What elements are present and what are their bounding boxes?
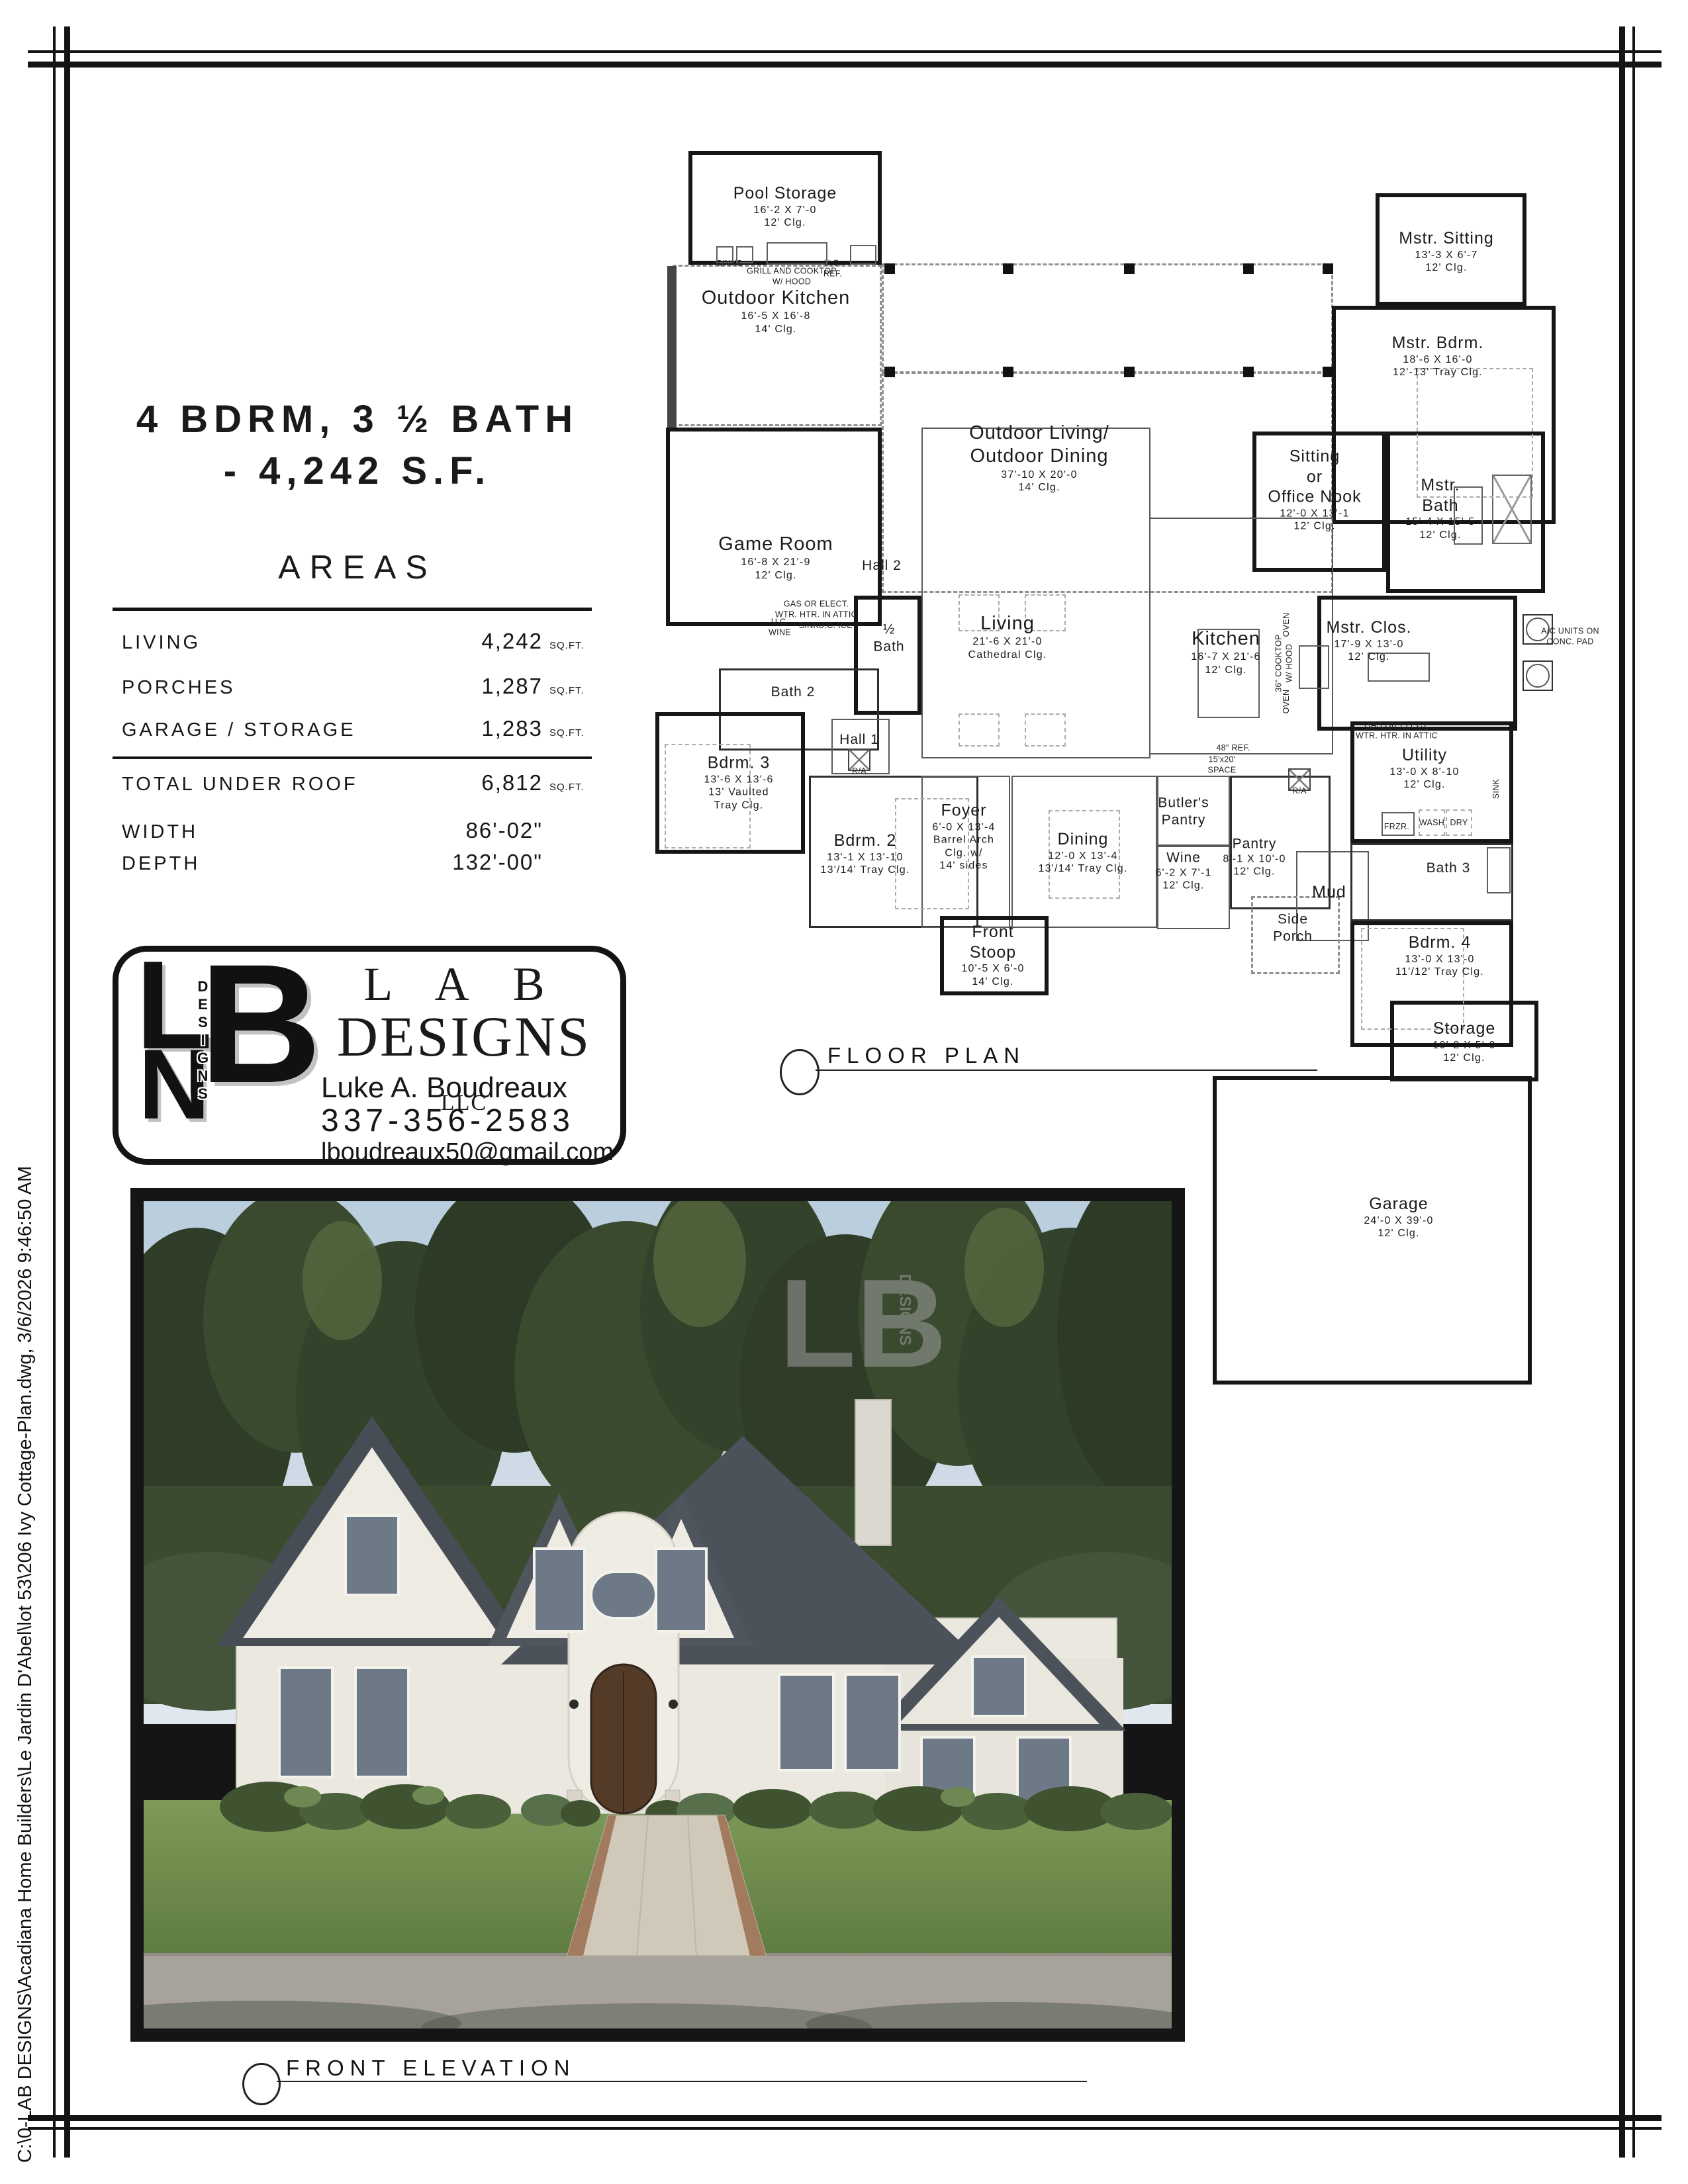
annotation-return-air-2: R/A bbox=[1292, 786, 1307, 797]
grill-icon bbox=[767, 242, 827, 265]
logo-email: lboudreaux50@gmail.com bbox=[321, 1140, 606, 1165]
lantern bbox=[569, 1700, 579, 1709]
room-label-pantry: Pantry 8'-1 X 10'-0 12' Clg. bbox=[1223, 836, 1286, 879]
areas-label: WIDTH bbox=[122, 821, 437, 843]
bath3-tub-outline bbox=[1487, 847, 1511, 893]
border-top-thick bbox=[28, 62, 1662, 68]
areas-value: 1,287 bbox=[437, 674, 543, 699]
room-label-sitting-office: Sitting or Office Nook 12'-0 X 13'-1 12'… bbox=[1268, 447, 1361, 533]
porch-column bbox=[1124, 367, 1135, 377]
room-label-mstr-sitting: Mstr. Sitting 13'-3 X 6'-7 12' Clg. bbox=[1399, 228, 1494, 275]
annotation-oven-lower: OVEN bbox=[1282, 690, 1292, 714]
porch-column bbox=[1003, 263, 1013, 274]
room-label-hall2: Hall 2 bbox=[862, 557, 902, 574]
porch-column bbox=[884, 263, 895, 274]
photo-watermark: LB DESIGNS bbox=[779, 1253, 947, 1394]
ac-unit-symbol bbox=[1523, 660, 1553, 691]
room-outline-game-room bbox=[666, 428, 882, 626]
monogram-vertical-designs: DESIGNS bbox=[194, 978, 211, 1103]
border-left-thick bbox=[64, 26, 70, 2158]
room-label-living: Living 21'-6 X 21'-0 Cathedral Clg. bbox=[968, 612, 1047, 661]
annotation-uc-ref: U.C. REF. bbox=[823, 258, 842, 279]
logo-name-lab: L A B bbox=[317, 957, 608, 1012]
annotation-space-15x20: 15'x20' SPACE bbox=[1208, 754, 1237, 775]
room-label-half-bath: ½ Bath bbox=[873, 621, 904, 655]
annotation-uc-wine: U.C. WINE bbox=[769, 617, 791, 637]
logo-phone: 337-356-2583 bbox=[321, 1105, 606, 1137]
border-bottom-thin bbox=[28, 2127, 1662, 2130]
annotation-return-air-1: R/A bbox=[852, 766, 867, 777]
areas-label: LIVING bbox=[122, 632, 437, 654]
annotation-utility-sink: SINK bbox=[1491, 779, 1502, 799]
uc-ref-icon bbox=[850, 245, 876, 265]
margin-file-path: C:\0-LAB DESIGNS\Acadiana Home Builders\… bbox=[15, 997, 36, 2163]
floor-plan-callout-label: FLOOR PLAN bbox=[827, 1043, 1025, 1068]
room-label-mstr-bdrm: Mstr. Bdrm. 18'-6 X 16'-0 12'-13' Tray C… bbox=[1392, 333, 1484, 379]
lantern bbox=[669, 1700, 678, 1709]
room-label-side-porch: Side Porch bbox=[1273, 911, 1313, 944]
areas-row-garage-storage: GARAGE / STORAGE 1,283 SQ.FT. bbox=[122, 716, 600, 741]
porch-column bbox=[1243, 263, 1254, 274]
annotation-oven-upper: OVEN bbox=[1282, 613, 1292, 637]
porch-column bbox=[1003, 367, 1013, 377]
plan-title-line2: - 4,242 S.F. bbox=[113, 449, 602, 493]
annotation-cooktop: 36" COOKTOP W/ HOOD bbox=[1274, 634, 1294, 692]
porch-wall-accent bbox=[667, 266, 677, 428]
annotation-ref-48: 48" REF. bbox=[1216, 743, 1250, 754]
porch-column bbox=[1323, 367, 1333, 377]
areas-label: GARAGE / STORAGE bbox=[122, 719, 437, 741]
areas-unit: SQ.FT. bbox=[543, 640, 600, 651]
room-label-game-room: Game Room 16'-8 X 21'-9 12' Clg. bbox=[718, 533, 833, 582]
annotation-bar-sink: SINK bbox=[799, 621, 819, 631]
room-label-bdrm4: Bdrm. 4 13'-0 X 13'-0 11'/12' Tray Clg. bbox=[1395, 933, 1484, 979]
chimney bbox=[855, 1400, 891, 1545]
annotation-water-heater-2: GAS OR ELECT. WTR. HTR. IN ATTIC bbox=[1356, 720, 1438, 741]
porch-column bbox=[1323, 263, 1333, 274]
plan-title-line1: 4 BDRM, 3 ½ BATH bbox=[113, 397, 602, 441]
room-label-utility: Utility 13'-0 X 8'-10 12' Clg. bbox=[1389, 745, 1459, 792]
room-label-front-stoop: Front Stoop 10'-5 X 6'-0 14' Clg. bbox=[961, 922, 1024, 988]
front-elevation-callout-bubble bbox=[242, 2063, 281, 2105]
room-label-storage: Storage 10'-2 X 5'-0 12' Clg. bbox=[1432, 1019, 1495, 1065]
areas-rule-top bbox=[113, 608, 592, 611]
areas-row-living: LIVING 4,242 SQ.FT. bbox=[122, 629, 600, 654]
areas-unit: SQ.FT. bbox=[543, 782, 600, 793]
room-label-bdrm2: Bdrm. 2 13'-1 X 13'-10 13'/14' Tray Clg. bbox=[820, 831, 910, 877]
areas-unit: SQ.FT. bbox=[543, 727, 600, 739]
room-label-outdoor-living: Outdoor Living/ Outdoor Dining 37'-10 X … bbox=[969, 422, 1109, 494]
room-label-wine: Wine 6'-2 X 7'-1 12' Clg. bbox=[1155, 850, 1211, 893]
front-elevation-callout-line bbox=[277, 2081, 1087, 2082]
areas-row-total: TOTAL UNDER ROOF 6,812 SQ.FT. bbox=[122, 770, 600, 796]
room-label-outdoor-kitchen: Outdoor Kitchen 16'-5 X 16'-8 14' Clg. bbox=[702, 287, 851, 336]
areas-value: 4,242 bbox=[437, 629, 543, 654]
front-elevation-photo: LB DESIGNS bbox=[130, 1188, 1185, 2042]
room-label-foyer: Foyer 6'-0 X 13'-4 Barrel Arch Clg. w/ 1… bbox=[932, 801, 995, 873]
room-label-mud: Mud bbox=[1312, 882, 1346, 903]
areas-row-porches: PORCHES 1,287 SQ.FT. bbox=[122, 674, 600, 699]
porch-outline-upper-colonnade bbox=[882, 263, 1333, 373]
monogram-letter-b: B bbox=[199, 927, 322, 1121]
border-top-thin bbox=[28, 50, 1662, 53]
border-left-thin bbox=[53, 26, 56, 2158]
annotation-wash: WASH bbox=[1419, 818, 1444, 829]
room-label-bath3: Bath 3 bbox=[1427, 860, 1471, 877]
floor-plan-callout-line bbox=[816, 1069, 1317, 1071]
annotation-sinks: SINKS bbox=[716, 259, 742, 269]
floor-plan-callout-bubble bbox=[780, 1049, 820, 1095]
border-right-thick bbox=[1619, 26, 1625, 2158]
areas-label: PORCHES bbox=[122, 677, 437, 699]
annotation-ac-units: A/C UNITS ON CONC. PAD bbox=[1541, 626, 1599, 647]
room-label-garage: Garage 24'-0 X 39'-0 12' Clg. bbox=[1364, 1194, 1433, 1240]
areas-value: 132'-00" bbox=[437, 850, 543, 875]
porch-column bbox=[1243, 367, 1254, 377]
lb-monogram: L N B DESIGNS bbox=[136, 956, 301, 1154]
logo-contact-name: Luke A. Boudreaux bbox=[321, 1073, 606, 1103]
areas-value: 6,812 bbox=[437, 770, 543, 796]
room-label-pool-storage: Pool Storage 16'-2 X 7'-0 12' Clg. bbox=[733, 183, 837, 230]
border-bottom-thick bbox=[28, 2115, 1662, 2121]
areas-value: 1,283 bbox=[437, 716, 543, 741]
elevation-scene: LB DESIGNS bbox=[144, 1201, 1172, 2028]
range-icon bbox=[1299, 645, 1329, 689]
annotation-dry: DRY bbox=[1450, 818, 1468, 829]
border-right-thin bbox=[1632, 26, 1635, 2158]
road-shadows bbox=[144, 2001, 1172, 2028]
porch-column bbox=[884, 367, 895, 377]
svg-text:LB: LB bbox=[779, 1253, 947, 1394]
room-label-bath2: Bath 2 bbox=[771, 684, 816, 701]
annotation-frzr: FRZR. bbox=[1384, 822, 1409, 833]
svg-text:DESIGNS: DESIGNS bbox=[896, 1274, 914, 1345]
logo-designs-text: DESIGNS bbox=[337, 1005, 591, 1068]
front-elevation-callout-label: FRONT ELEVATION bbox=[286, 2056, 576, 2081]
room-label-kitchen: Kitchen 16'-7 X 21'-6 12' Clg. bbox=[1191, 627, 1260, 676]
room-label-dining: Dining 12'-0 X 13'-4 13'/14' Tray Clg. bbox=[1038, 829, 1127, 876]
drawing-sheet: C:\0-LAB DESIGNS\Acadiana Home Builders\… bbox=[0, 0, 1688, 2184]
living-sofa-outline bbox=[959, 713, 1000, 747]
annotation-uc-ice: U.C. ICE bbox=[818, 621, 853, 631]
room-label-bdrm3: Bdrm. 3 13'-6 X 13'-6 13' Vaulted Tray C… bbox=[704, 752, 773, 811]
room-label-butlers-pantry: Butler's Pantry bbox=[1158, 794, 1209, 828]
room-label-hall1: Hall 1 bbox=[839, 731, 879, 749]
areas-label: DEPTH bbox=[122, 853, 437, 875]
areas-label: TOTAL UNDER ROOF bbox=[122, 774, 437, 796]
areas-heading: AREAS bbox=[113, 548, 602, 586]
areas-value: 86'-02" bbox=[437, 818, 543, 843]
living-sofa-outline bbox=[1025, 713, 1066, 747]
areas-row-width: WIDTH 86'-02" bbox=[122, 818, 600, 843]
porch-column bbox=[1124, 263, 1135, 274]
room-label-mstr-bath: Mstr. Bath 15'-4 X 15'-5 12' Clg. bbox=[1405, 475, 1475, 541]
areas-unit: SQ.FT. bbox=[543, 685, 600, 696]
areas-row-depth: DEPTH 132'-00" bbox=[122, 850, 600, 875]
areas-rule-bottom bbox=[113, 756, 592, 759]
room-label-mstr-clos: Mstr. Clos. 17'-9 X 13'-0 12' Clg. bbox=[1326, 617, 1411, 664]
lab-designs-logo-block: L N B DESIGNS L A B DESIGNS LLC Luke A. … bbox=[113, 946, 626, 1165]
